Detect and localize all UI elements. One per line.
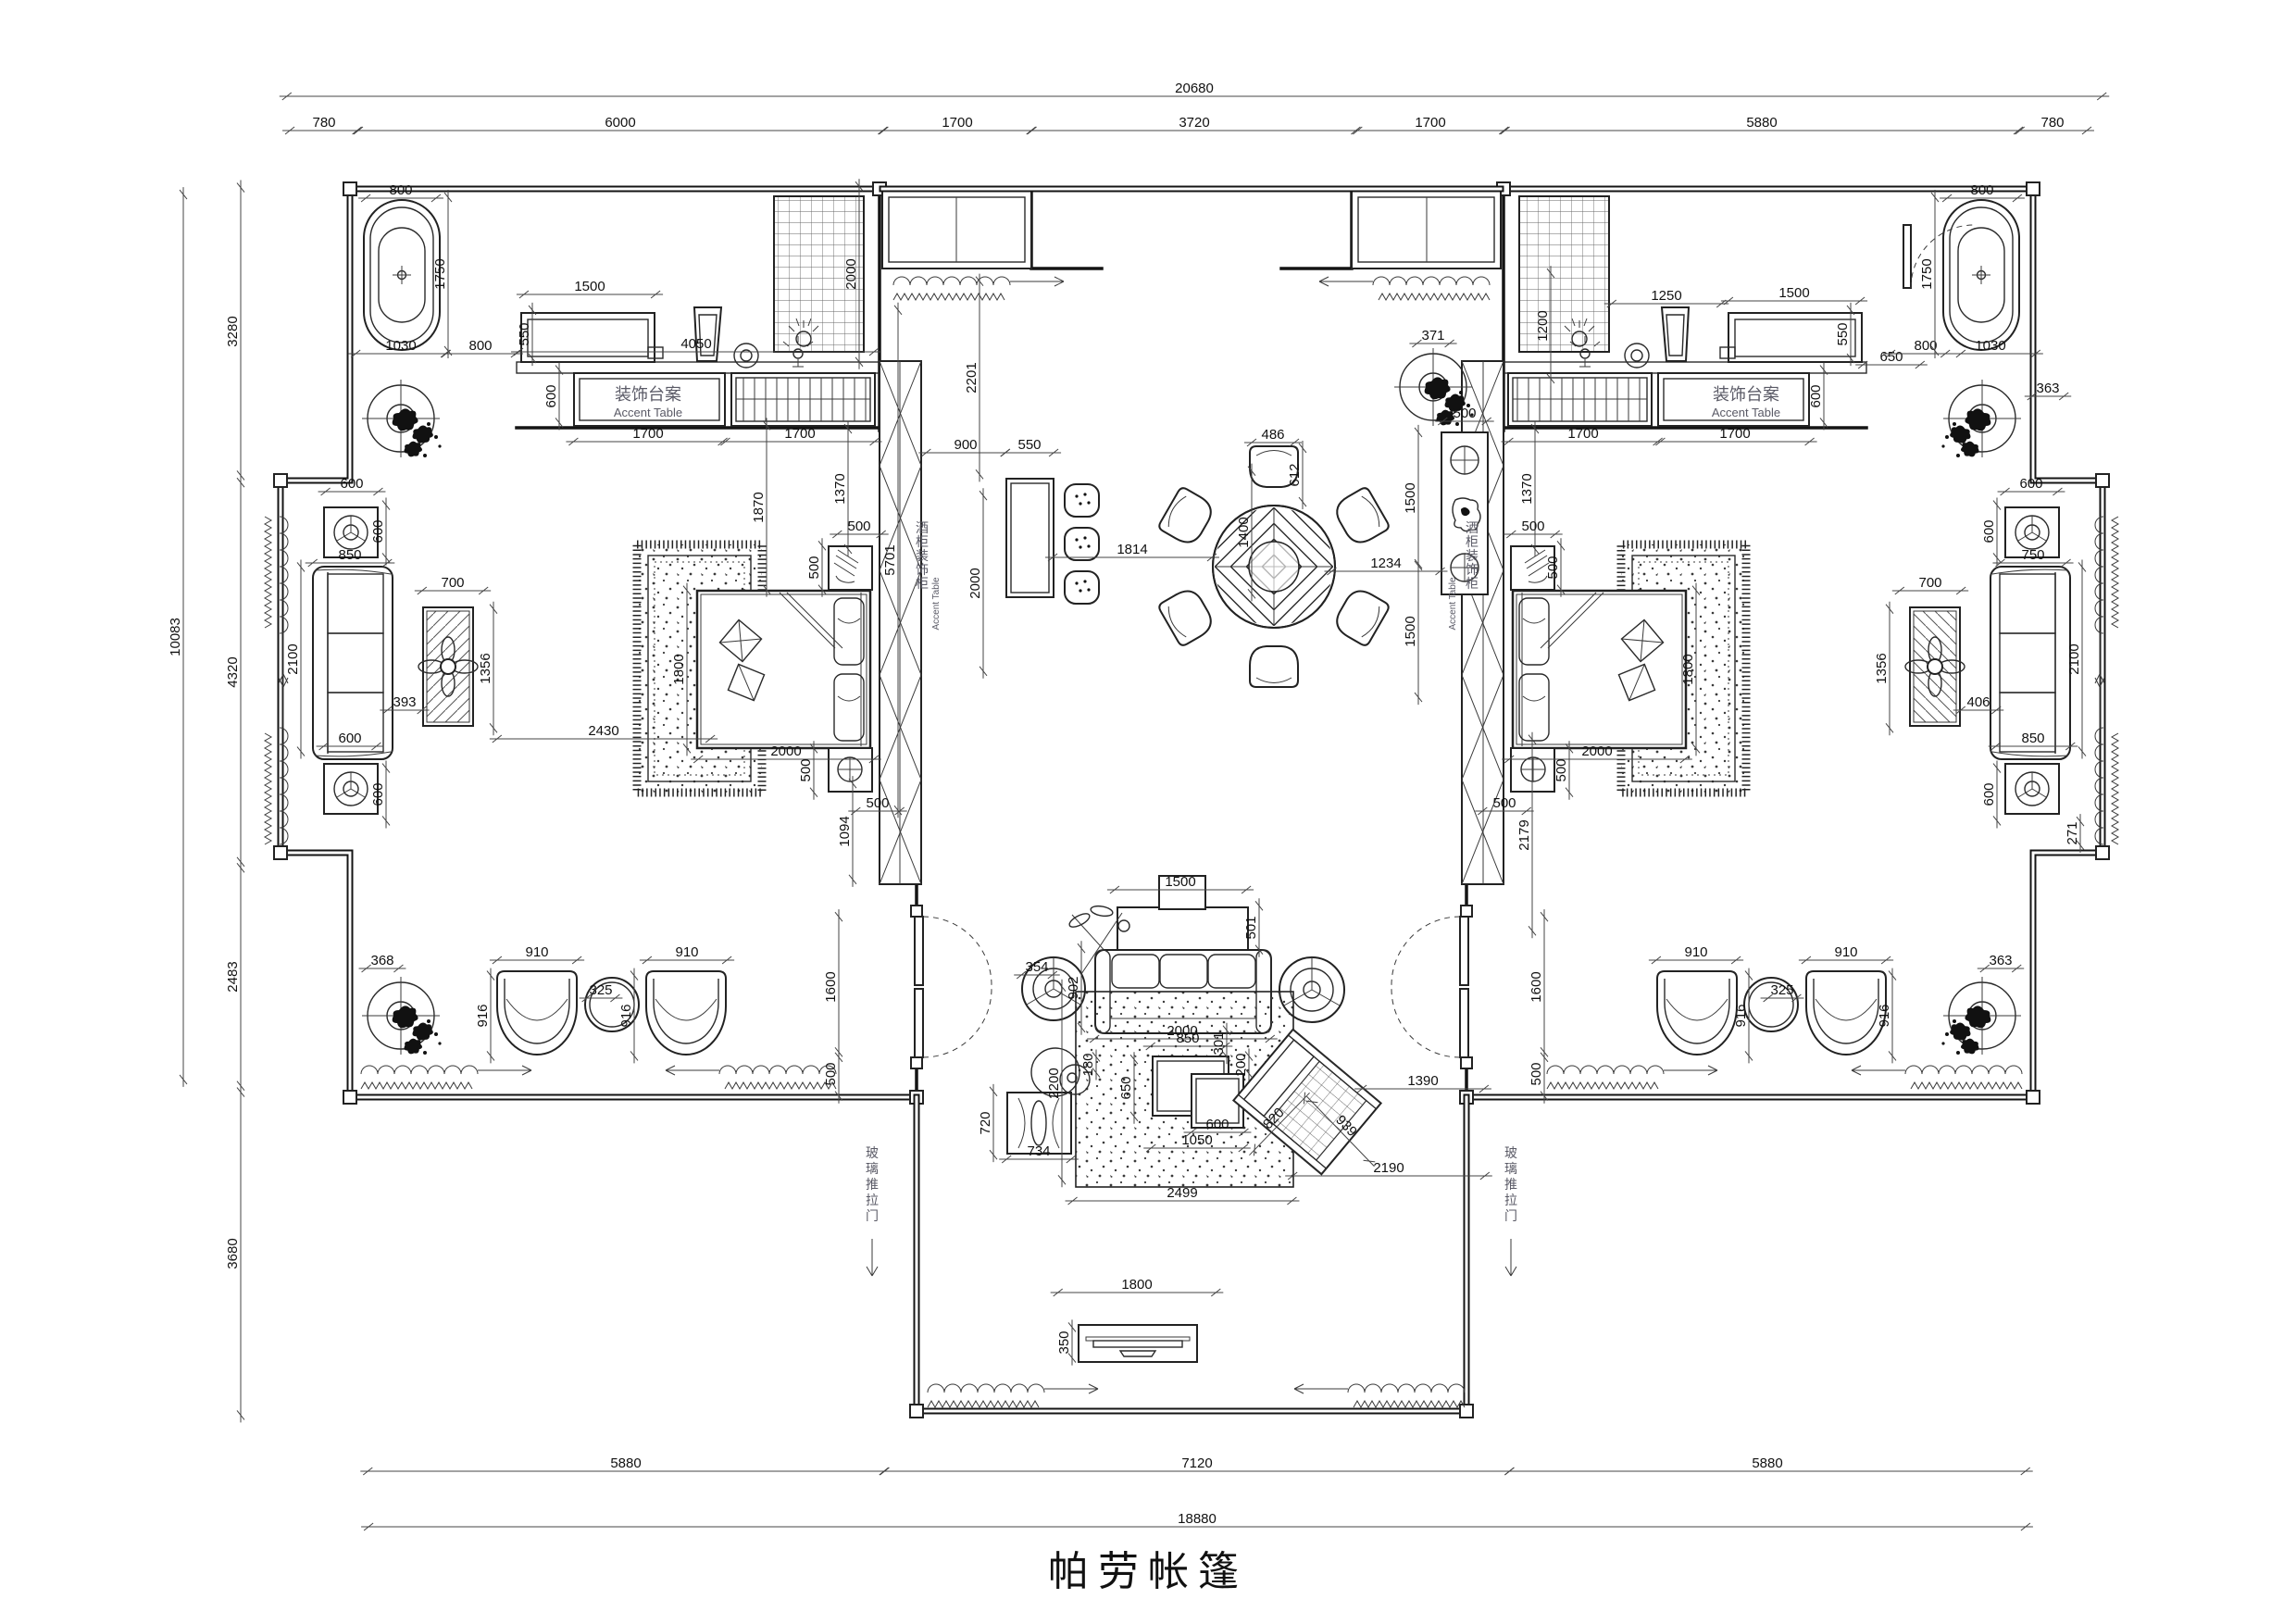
dimension: 600 <box>1981 498 2001 566</box>
dimension: 1600 <box>823 909 842 1065</box>
dimension: 700 <box>415 575 491 594</box>
svg-text:500: 500 <box>1521 518 1544 534</box>
svg-text:600: 600 <box>1205 1117 1229 1132</box>
dimension: 500 <box>1504 518 1562 538</box>
svg-text:650: 650 <box>1118 1076 1134 1099</box>
dimension: 2499 <box>1066 1185 1300 1205</box>
svg-text:2000: 2000 <box>770 743 801 759</box>
svg-text:1500: 1500 <box>1403 482 1418 513</box>
svg-text:1250: 1250 <box>1651 288 1681 304</box>
dimension: 500 <box>1554 741 1573 799</box>
svg-text:600: 600 <box>1808 384 1824 407</box>
dimension: 368 <box>359 953 406 972</box>
svg-text:325: 325 <box>589 982 612 998</box>
svg-text:1870: 1870 <box>751 492 767 522</box>
svg-text:600: 600 <box>2019 476 2042 492</box>
dimension: 20680 <box>280 81 2109 100</box>
svg-text:850: 850 <box>2021 731 2044 746</box>
dimension: 916 <box>475 968 494 1064</box>
svg-text:1700: 1700 <box>632 426 663 442</box>
glass_door-label: 玻璃推拉门 <box>866 1145 879 1223</box>
dining-table <box>1182 475 1366 658</box>
svg-text:1750: 1750 <box>432 258 448 289</box>
glass_door-label: 玻璃推拉门 <box>1504 1145 1517 1223</box>
dimension: 6000 <box>350 115 892 134</box>
svg-text:910: 910 <box>675 944 698 960</box>
svg-text:2200: 2200 <box>1046 1068 1062 1098</box>
dimension: 18880 <box>361 1511 2033 1530</box>
dimension: 1250 <box>1604 288 1729 307</box>
dimension: 1390 <box>1354 1073 1491 1093</box>
svg-text:550: 550 <box>517 322 532 345</box>
svg-text:1800: 1800 <box>671 654 687 684</box>
svg-text:5880: 5880 <box>610 1455 641 1471</box>
svg-text:1030: 1030 <box>1975 338 2005 354</box>
dimension: 1500 <box>1403 558 1422 705</box>
svg-text:325: 325 <box>1770 982 1793 998</box>
svg-text:1700: 1700 <box>1415 115 1445 131</box>
svg-text:5880: 5880 <box>1752 1455 1782 1471</box>
svg-text:612: 612 <box>1287 463 1303 486</box>
dimension: 850 <box>306 547 395 567</box>
dimension: 550 <box>998 437 1061 456</box>
dimension: 700 <box>1892 575 1968 594</box>
accent-table-label: 装饰台案 <box>615 385 681 404</box>
svg-text:2100: 2100 <box>2066 643 2082 674</box>
dimension: 1700 <box>875 115 1039 134</box>
dimension: 10083 <box>168 187 187 1087</box>
tv-console <box>1079 1325 1197 1362</box>
svg-text:600: 600 <box>338 731 361 746</box>
dimension: 3720 <box>1024 115 1366 134</box>
bar-stools <box>1065 484 1099 604</box>
dimension: 1500 <box>1721 285 1867 305</box>
svg-text:780: 780 <box>312 115 335 131</box>
svg-text:700: 700 <box>441 575 464 591</box>
svg-text:5880: 5880 <box>1746 115 1777 131</box>
svg-text:1356: 1356 <box>478 653 493 683</box>
svg-text:910: 910 <box>525 944 548 960</box>
svg-text:916: 916 <box>1733 1004 1749 1027</box>
svg-text:800: 800 <box>389 182 412 198</box>
svg-text:500: 500 <box>798 758 814 781</box>
dimension: 1600 <box>1529 909 1548 1065</box>
dimension: 271 <box>2065 814 2084 853</box>
svg-text:900: 900 <box>954 437 977 453</box>
dimension: 2483 <box>225 860 244 1093</box>
dimension: 780 <box>282 115 366 134</box>
wine_cabinet-label: 酒柜装饰柜 <box>1466 520 1479 591</box>
svg-text:20680: 20680 <box>1175 81 1214 96</box>
svg-text:600: 600 <box>370 519 386 543</box>
svg-text:2201: 2201 <box>964 362 980 393</box>
svg-text:1356: 1356 <box>1874 653 1890 683</box>
svg-text:406: 406 <box>1966 694 1990 710</box>
svg-text:902: 902 <box>1066 976 1081 999</box>
dimension: 4320 <box>225 475 244 869</box>
svg-text:1390: 1390 <box>1407 1073 1438 1089</box>
accent_en-label: Accent Table <box>931 577 942 631</box>
svg-text:916: 916 <box>475 1004 491 1027</box>
svg-text:1800: 1800 <box>1121 1277 1152 1293</box>
dimension: 1800 <box>1051 1277 1224 1296</box>
floor-plan-drawing: 2068078060001700372017005880780100833280… <box>0 0 2296 1624</box>
dimension: 5880 <box>1502 1455 2032 1475</box>
svg-text:3280: 3280 <box>225 316 241 346</box>
dimension: 1700 <box>1348 115 1512 134</box>
svg-text:1400: 1400 <box>1236 517 1252 547</box>
dimension: 3280 <box>225 181 244 483</box>
dimension: 1094 <box>837 776 856 887</box>
svg-text:301: 301 <box>1211 1031 1227 1055</box>
dimension: 5880 <box>360 1455 891 1475</box>
svg-text:371: 371 <box>1421 328 1444 344</box>
dimension: 371 <box>1409 328 1456 347</box>
svg-text:1050: 1050 <box>1181 1132 1212 1148</box>
svg-text:500: 500 <box>823 1062 839 1085</box>
svg-text:500: 500 <box>1529 1062 1544 1085</box>
svg-text:500: 500 <box>1492 795 1516 811</box>
svg-text:1030: 1030 <box>385 338 416 354</box>
svg-text:734: 734 <box>1027 1143 1050 1159</box>
svg-text:700: 700 <box>1918 575 1941 591</box>
svg-text:800: 800 <box>468 338 492 354</box>
svg-text:1700: 1700 <box>1719 426 1750 442</box>
glass-door-arrow <box>867 1239 1516 1276</box>
svg-text:18880: 18880 <box>1178 1511 1217 1527</box>
svg-text:600: 600 <box>340 476 363 492</box>
dimension: 350 <box>1056 1319 1076 1365</box>
svg-text:486: 486 <box>1261 427 1284 443</box>
dimension: 1234 <box>1325 556 1448 575</box>
svg-text:1800: 1800 <box>1680 654 1696 684</box>
svg-text:2190: 2190 <box>1373 1160 1404 1176</box>
svg-text:2000: 2000 <box>1581 743 1612 759</box>
svg-text:1370: 1370 <box>1519 473 1535 504</box>
svg-text:363: 363 <box>2036 381 2059 396</box>
svg-text:1200: 1200 <box>1535 310 1551 341</box>
svg-text:2430: 2430 <box>588 723 618 739</box>
svg-text:600: 600 <box>1981 782 1997 806</box>
svg-text:1600: 1600 <box>823 971 839 1002</box>
accent-table-label-en: Accent Table <box>1712 406 1780 419</box>
svg-text:750: 750 <box>2021 547 2044 563</box>
accent_en-label: Accent Table <box>1448 577 1458 631</box>
svg-text:1500: 1500 <box>574 279 605 294</box>
svg-text:354: 354 <box>1025 959 1048 975</box>
svg-text:500: 500 <box>806 556 822 579</box>
dimension: 900 <box>918 437 1012 456</box>
svg-text:4320: 4320 <box>225 656 241 687</box>
dimension: 1750 <box>432 190 452 358</box>
svg-text:200: 200 <box>1233 1053 1249 1076</box>
dimension: 1500 <box>517 279 663 298</box>
svg-text:4050: 4050 <box>680 336 711 352</box>
svg-text:10083: 10083 <box>168 618 183 656</box>
dimension: 720 <box>978 1084 997 1162</box>
svg-text:2000: 2000 <box>967 568 983 598</box>
dimension: 600 <box>1981 761 2001 829</box>
dimension: 3680 <box>225 1085 244 1423</box>
svg-text:6000: 6000 <box>605 115 635 131</box>
svg-text:5701: 5701 <box>882 544 898 575</box>
svg-text:1370: 1370 <box>832 473 848 504</box>
floor-plan-sheet: 2068078060001700372017005880780100833280… <box>0 0 2296 1624</box>
svg-text:600: 600 <box>370 782 386 806</box>
dimension-layer: 2068078060001700372017005880780100833280… <box>168 81 2109 1530</box>
dimension: 7120 <box>878 1455 1517 1475</box>
svg-text:501: 501 <box>1243 916 1259 939</box>
accent-table-label-en: Accent Table <box>614 406 682 419</box>
dimension: 910 <box>1649 944 1743 964</box>
svg-text:916: 916 <box>1877 1004 1892 1027</box>
svg-text:500: 500 <box>1554 758 1569 781</box>
svg-text:800: 800 <box>1914 338 1937 354</box>
svg-text:2000: 2000 <box>843 258 859 289</box>
svg-text:393: 393 <box>393 694 416 710</box>
svg-text:350: 350 <box>1056 1330 1072 1354</box>
svg-text:1500: 1500 <box>1778 285 1809 301</box>
dimension: 2000 <box>967 488 987 679</box>
dimension: 500 <box>806 538 826 596</box>
dimension: 780 <box>2011 115 2094 134</box>
svg-text:1500: 1500 <box>1403 616 1418 646</box>
svg-text:3680: 3680 <box>225 1238 241 1268</box>
svg-text:780: 780 <box>2040 115 2064 131</box>
dimension: 1500 <box>1403 425 1422 571</box>
svg-text:1700: 1700 <box>784 426 815 442</box>
svg-text:2499: 2499 <box>1167 1185 1197 1201</box>
svg-text:850: 850 <box>1176 1031 1199 1046</box>
svg-text:910: 910 <box>1834 944 1857 960</box>
svg-text:916: 916 <box>618 1004 634 1027</box>
svg-text:600: 600 <box>1981 519 1997 543</box>
svg-text:650: 650 <box>1879 349 1903 365</box>
svg-text:1814: 1814 <box>1117 542 1147 557</box>
svg-text:500: 500 <box>1453 406 1476 421</box>
dimension: 5880 <box>1496 115 2027 134</box>
svg-text:1750: 1750 <box>1919 258 1935 289</box>
dimension: 910 <box>490 944 584 964</box>
svg-text:800: 800 <box>1970 182 1993 198</box>
wine_cabinet-label: 酒柜装饰柜 <box>916 520 929 591</box>
bar-counter <box>1006 479 1054 597</box>
accent-table-label: 装饰台案 <box>1713 385 1779 404</box>
dimension: 1356 <box>478 602 497 736</box>
svg-text:2100: 2100 <box>285 643 301 674</box>
svg-text:720: 720 <box>978 1111 993 1134</box>
drawing-title: 帕劳帐篷 <box>1048 1548 1248 1595</box>
svg-text:368: 368 <box>370 953 393 968</box>
svg-text:850: 850 <box>338 547 361 563</box>
svg-text:1600: 1600 <box>1529 971 1544 1002</box>
svg-text:1500: 1500 <box>1165 874 1195 890</box>
dimension: 910 <box>640 944 734 964</box>
svg-text:2179: 2179 <box>1516 819 1532 850</box>
dimension: 1356 <box>1874 602 1893 736</box>
svg-text:1094: 1094 <box>837 816 853 846</box>
svg-text:500: 500 <box>847 518 870 534</box>
svg-text:1700: 1700 <box>942 115 972 131</box>
svg-text:500: 500 <box>866 795 889 811</box>
svg-text:600: 600 <box>543 384 559 407</box>
svg-text:1700: 1700 <box>1567 426 1598 442</box>
svg-text:500: 500 <box>1545 556 1561 579</box>
dimension: 910 <box>1799 944 1893 964</box>
dimension: 486 <box>1244 427 1302 446</box>
svg-text:3720: 3720 <box>1179 115 1209 131</box>
svg-text:363: 363 <box>1989 953 2012 968</box>
svg-text:2483: 2483 <box>225 961 241 992</box>
dimension: 1030 <box>1938 338 2043 357</box>
svg-text:271: 271 <box>2065 821 2080 844</box>
svg-text:7120: 7120 <box>1181 1455 1212 1471</box>
svg-text:1234: 1234 <box>1370 556 1401 571</box>
svg-text:180: 180 <box>1080 1053 1096 1076</box>
dimension: 363 <box>1978 953 2024 972</box>
dimension: 1030 <box>348 338 454 357</box>
svg-text:550: 550 <box>1835 322 1851 345</box>
kitchen-counter <box>1441 432 1488 594</box>
svg-text:550: 550 <box>1017 437 1041 453</box>
dimension: 1750 <box>1919 190 1939 358</box>
svg-text:910: 910 <box>1684 944 1707 960</box>
